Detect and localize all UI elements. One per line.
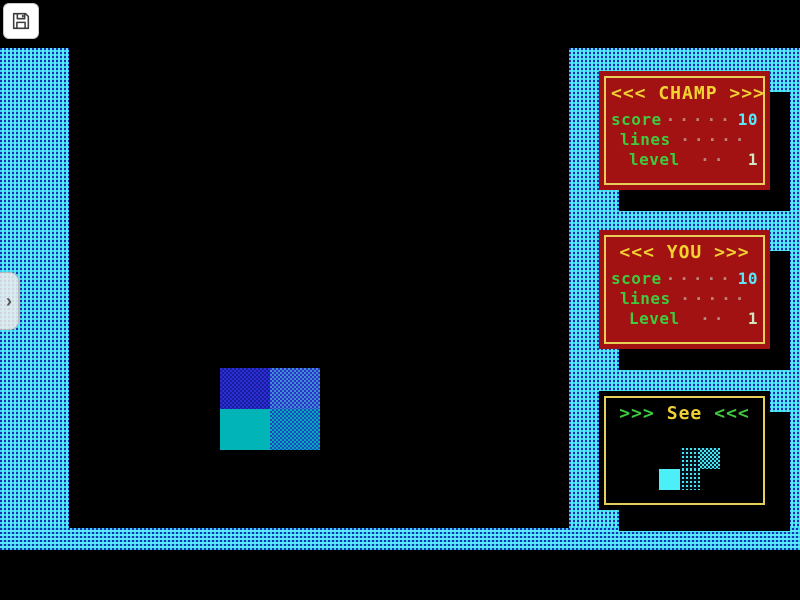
you-level-row: Level ·· 1: [611, 309, 758, 329]
next-piece-block-bottom-middle: [680, 469, 700, 490]
drawer-handle[interactable]: ›: [0, 272, 19, 330]
playfield: [69, 48, 569, 528]
champ-lines-row: lines ·····: [611, 130, 758, 150]
floppy-disk-icon: [10, 10, 32, 32]
score-value: 10: [738, 269, 758, 289]
you-panel-title: <<< YOU >>>: [611, 242, 758, 263]
chevron-right-icon: ›: [6, 292, 12, 310]
save-button[interactable]: [3, 3, 39, 39]
falling-piece-block-top-left: [220, 368, 270, 409]
next-piece-block-bottom-left: [659, 469, 680, 490]
champ-panel-title: <<< CHAMP >>>: [611, 83, 758, 104]
dots-separator: ·····: [662, 269, 738, 289]
you-lines-row: lines ·····: [611, 289, 758, 309]
see-label: See: [667, 403, 703, 424]
bottom-wall: [0, 528, 800, 550]
score-value: 10: [738, 110, 758, 130]
falling-piece-block-top-right: [270, 368, 320, 409]
game-screen: <<< CHAMP >>> score ····· 10 lines ·····…: [0, 0, 800, 600]
dots-separator: ·····: [671, 289, 758, 309]
you-score-row: score ····· 10: [611, 269, 758, 289]
champ-score-row: score ····· 10: [611, 110, 758, 130]
dots-separator: ·····: [662, 110, 738, 130]
champ-level-row: level ·· 1: [611, 150, 758, 170]
level-value: 1: [748, 309, 758, 329]
level-value: 1: [748, 150, 758, 170]
lines-label: lines: [620, 289, 671, 309]
score-label: score: [611, 110, 662, 130]
falling-piece-block-bottom-right: [270, 409, 320, 450]
next-piece-block-top-right: [700, 448, 720, 469]
level-label: level: [629, 150, 680, 170]
you-score-panel: <<< YOU >>> score ····· 10 lines ····· L…: [599, 230, 770, 349]
next-piece-block-top-middle: [680, 448, 700, 469]
dots-separator: ·····: [671, 130, 758, 150]
dots-separator: ··: [680, 150, 748, 170]
score-label: score: [611, 269, 662, 289]
right-arrows-decoration: >>>: [619, 403, 655, 424]
lines-label: lines: [620, 130, 671, 150]
champ-score-panel: <<< CHAMP >>> score ····· 10 lines ·····…: [599, 71, 770, 190]
dots-separator: ··: [680, 309, 748, 329]
falling-piece-block-bottom-left: [220, 409, 270, 450]
left-arrows-decoration: <<<: [714, 403, 750, 424]
level-label: Level: [629, 309, 680, 329]
next-panel-title: >>> See <<<: [599, 403, 770, 424]
